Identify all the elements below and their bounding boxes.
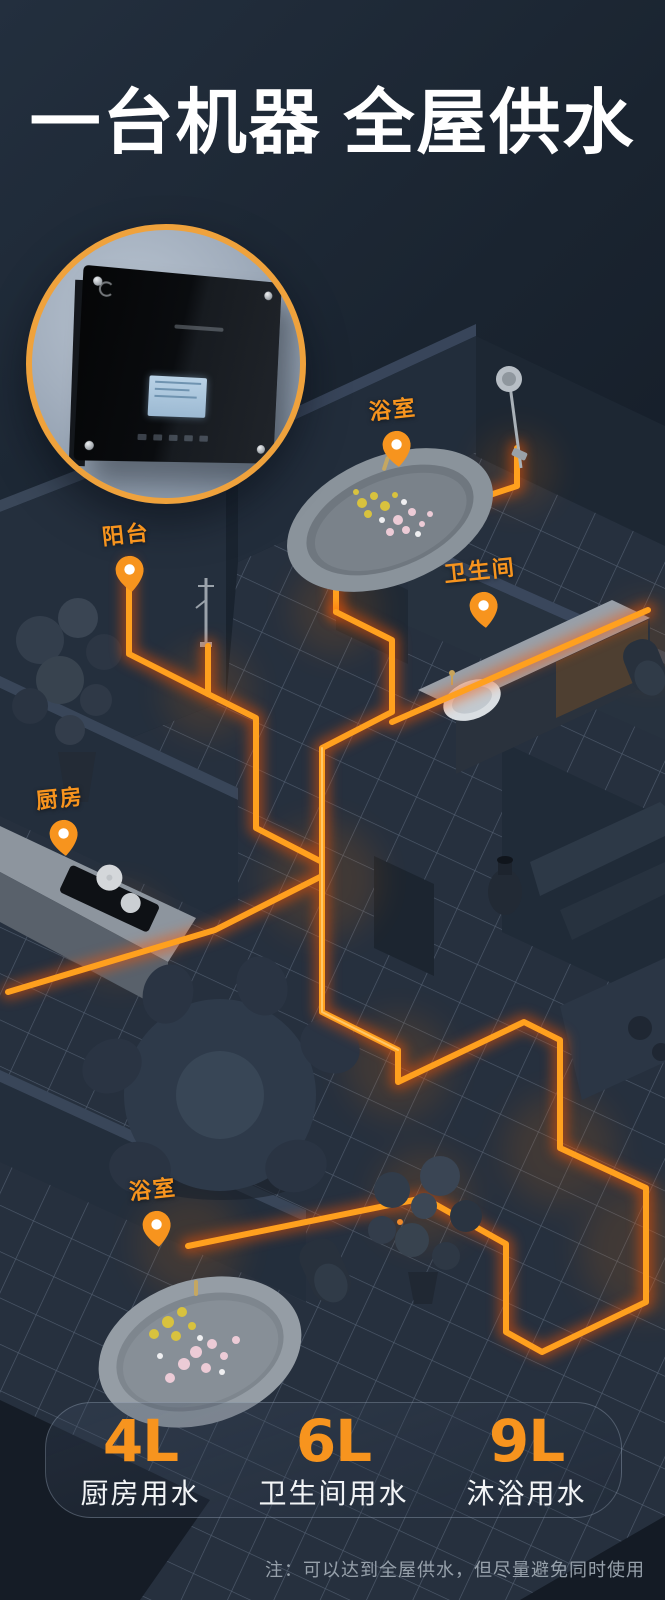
page-title: 一台机器 全屋供水 — [0, 66, 665, 168]
pin-label: 浴室 — [127, 1170, 178, 1207]
pin-label: 浴室 — [367, 390, 418, 427]
pin-bathroom-top: 浴室 — [367, 390, 423, 470]
brand-logo-mark — [174, 324, 223, 331]
footnote: 注：可以达到全屋供水，但尽量避免同时使用 — [265, 1556, 645, 1582]
location-pin-icon — [468, 591, 500, 630]
stat-label: 沐浴用水 — [467, 1480, 587, 1508]
stat-value: 6L — [296, 1412, 371, 1470]
lcd-display — [147, 376, 207, 419]
brand-logo-icon — [99, 281, 115, 298]
stat-toilet: 6L 卫生间用水 — [258, 1412, 408, 1508]
water-heater-unit — [73, 265, 281, 464]
location-pin-icon — [114, 555, 146, 594]
pin-kitchen: 厨房 — [34, 779, 90, 859]
pin-label: 卫生间 — [442, 549, 517, 588]
pin-toilet-room: 卫生间 — [442, 549, 521, 631]
touch-buttons — [138, 434, 209, 442]
stat-label: 卫生间用水 — [258, 1480, 408, 1508]
screw-icon — [264, 291, 272, 300]
pin-label: 厨房 — [34, 779, 85, 816]
stat-value: 9L — [489, 1412, 564, 1470]
product-badge — [26, 224, 306, 504]
location-pin-icon — [48, 819, 80, 858]
location-pin-icon — [381, 430, 413, 469]
water-usage-panel: 4L 厨房用水 6L 卫生间用水 9L 沐浴用水 — [45, 1402, 622, 1518]
stat-shower: 9L 沐浴用水 — [467, 1412, 587, 1508]
stat-value: 4L — [103, 1412, 178, 1470]
screw-icon — [257, 445, 265, 454]
pin-bathroom-bottom: 浴室 — [127, 1170, 183, 1250]
screw-icon — [84, 441, 94, 451]
stat-kitchen: 4L 厨房用水 — [80, 1412, 200, 1508]
stat-label: 厨房用水 — [80, 1480, 200, 1508]
poster: 一台机器 全屋供水 浴室 阳台 卫生间 — [0, 0, 665, 1600]
pin-balcony: 阳台 — [100, 515, 156, 595]
pin-label: 阳台 — [100, 515, 151, 552]
location-pin-icon — [141, 1210, 173, 1249]
